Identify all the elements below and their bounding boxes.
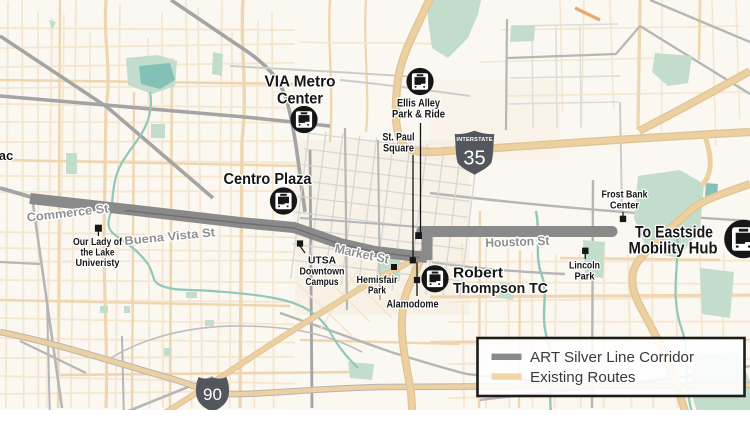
svg-text:Downtown: Downtown bbox=[300, 267, 345, 278]
svg-text:Square: Square bbox=[383, 143, 414, 155]
svg-text:the Lake: the Lake bbox=[81, 248, 115, 259]
svg-text:Univeristy: Univeristy bbox=[76, 258, 120, 269]
svg-text:Houston St: Houston St bbox=[485, 234, 550, 250]
svg-text:Thompson TC: Thompson TC bbox=[453, 280, 548, 297]
svg-text:Campus: Campus bbox=[306, 277, 339, 288]
svg-text:Park: Park bbox=[575, 271, 595, 283]
svg-text:Our Lady of: Our Lady of bbox=[73, 237, 122, 248]
svg-text:Alamodome: Alamodome bbox=[387, 299, 439, 311]
svg-text:35: 35 bbox=[463, 148, 485, 170]
svg-text:Hemisfair: Hemisfair bbox=[357, 275, 398, 286]
svg-text:Park: Park bbox=[368, 286, 386, 297]
svg-text:ac: ac bbox=[0, 148, 13, 163]
svg-text:Robert: Robert bbox=[453, 265, 503, 282]
svg-text:Center: Center bbox=[610, 200, 639, 212]
svg-text:VIA Metro: VIA Metro bbox=[265, 74, 336, 91]
svg-text:Existing Routes: Existing Routes bbox=[530, 369, 636, 386]
svg-text:Center: Center bbox=[277, 91, 323, 108]
svg-text:Park & Ride: Park & Ride bbox=[392, 109, 445, 121]
svg-text:ART Silver Line Corridor: ART Silver Line Corridor bbox=[530, 349, 694, 366]
svg-text:90: 90 bbox=[203, 385, 222, 404]
svg-text:Mobility Hub: Mobility Hub bbox=[629, 240, 718, 258]
svg-text:UTSA: UTSA bbox=[308, 256, 337, 267]
svg-text:Centro Plaza: Centro Plaza bbox=[224, 171, 312, 188]
svg-text:INTERSTATE: INTERSTATE bbox=[456, 137, 492, 143]
